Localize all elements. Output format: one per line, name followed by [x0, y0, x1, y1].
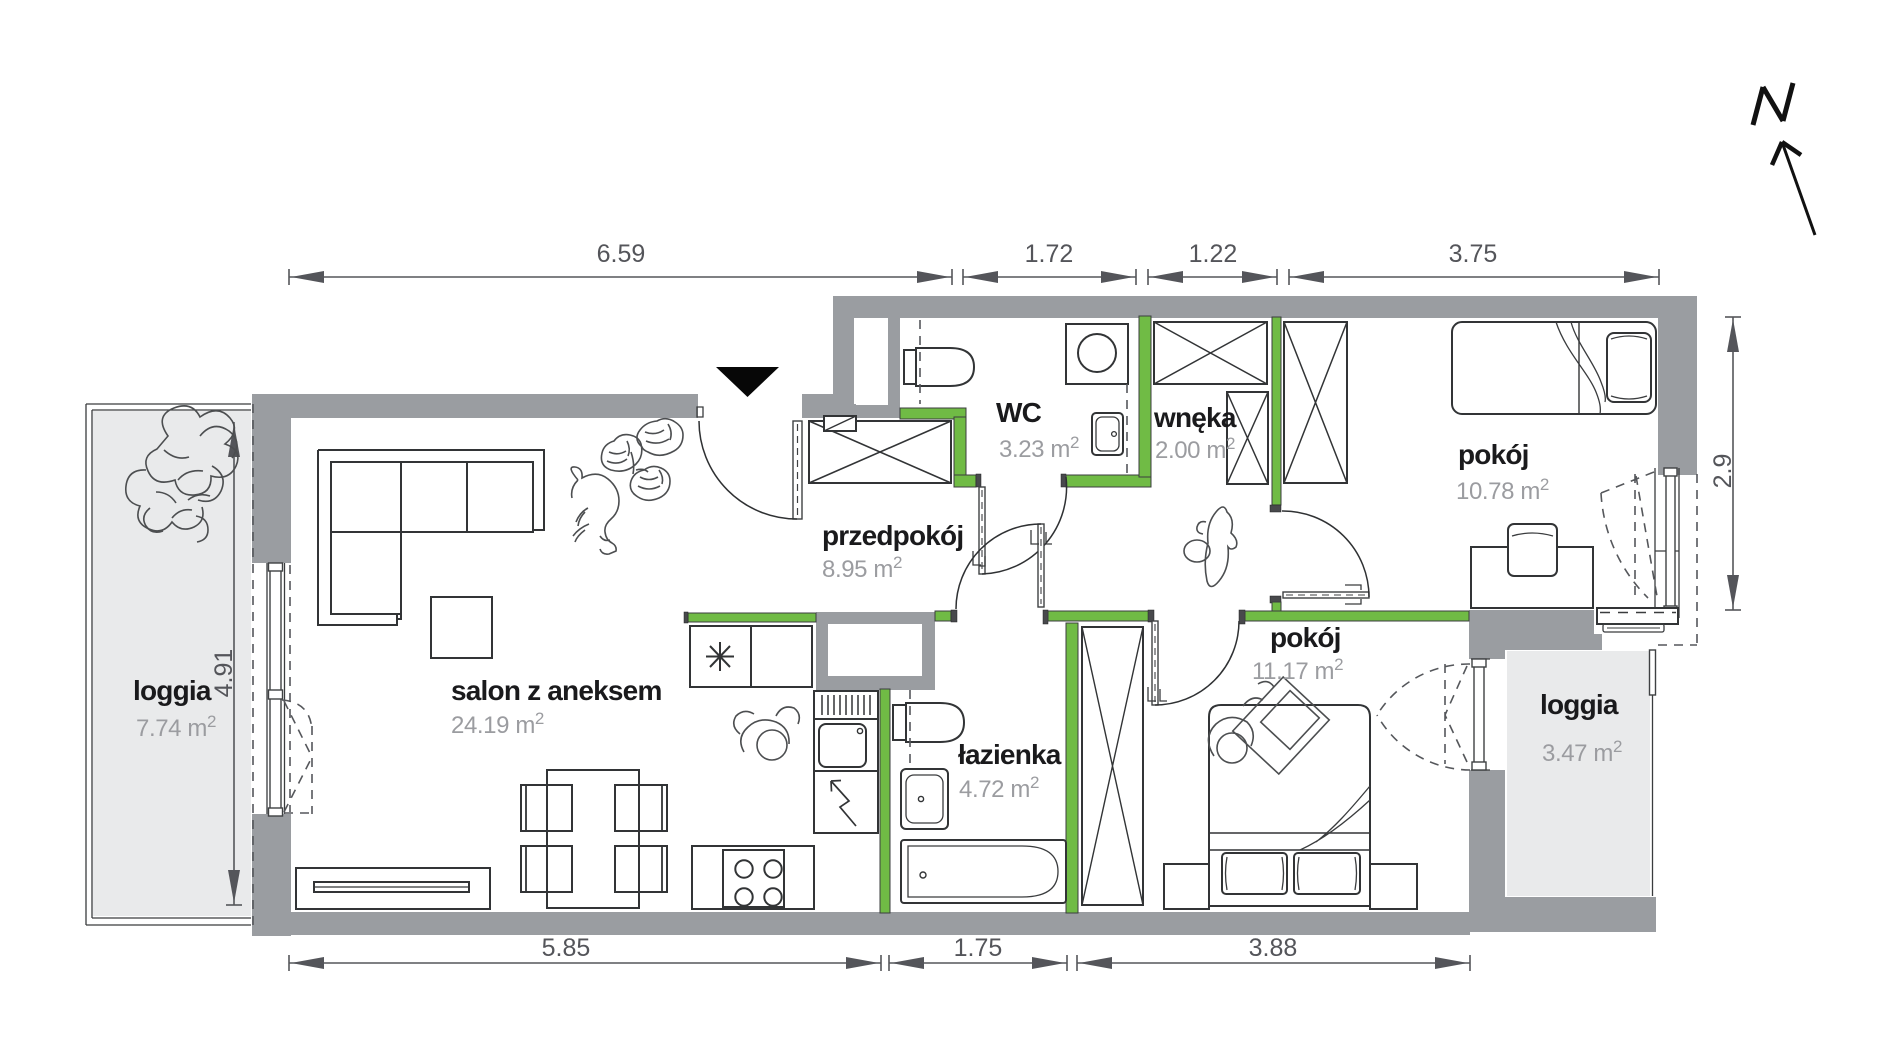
- svg-text:2.9: 2.9: [1709, 454, 1737, 489]
- svg-text:pokój: pokój: [1270, 622, 1341, 653]
- svg-text:3.88: 3.88: [1249, 934, 1298, 962]
- svg-text:4.72 m2: 4.72 m2: [959, 773, 1039, 803]
- svg-text:salon z aneksem: salon z aneksem: [451, 675, 662, 706]
- svg-text:3.23 m2: 3.23 m2: [999, 433, 1079, 463]
- svg-text:6.59: 6.59: [597, 240, 646, 268]
- svg-text:loggia: loggia: [1540, 689, 1619, 720]
- svg-text:1.72: 1.72: [1025, 240, 1074, 268]
- svg-text:24.19 m2: 24.19 m2: [451, 709, 544, 739]
- svg-text:przedpokój: przedpokój: [822, 520, 963, 551]
- svg-text:5.85: 5.85: [542, 934, 591, 962]
- svg-text:4.91: 4.91: [210, 649, 238, 698]
- svg-text:łazienka: łazienka: [958, 739, 1062, 770]
- svg-text:7.74 m2: 7.74 m2: [136, 712, 216, 742]
- svg-text:wnęka: wnęka: [1153, 402, 1237, 433]
- svg-text:3.47 m2: 3.47 m2: [1542, 737, 1622, 767]
- svg-text:3.75: 3.75: [1449, 240, 1498, 268]
- svg-text:1.22: 1.22: [1189, 240, 1238, 268]
- svg-text:11.17 m2: 11.17 m2: [1252, 655, 1343, 685]
- svg-text:pokój: pokój: [1458, 439, 1529, 470]
- svg-text:WC: WC: [996, 397, 1042, 428]
- svg-text:8.95 m2: 8.95 m2: [822, 553, 902, 583]
- svg-text:loggia: loggia: [133, 675, 212, 706]
- svg-text:10.78 m2: 10.78 m2: [1456, 475, 1549, 505]
- svg-text:1.75: 1.75: [954, 934, 1003, 962]
- svg-text:2.00 m2: 2.00 m2: [1155, 434, 1235, 464]
